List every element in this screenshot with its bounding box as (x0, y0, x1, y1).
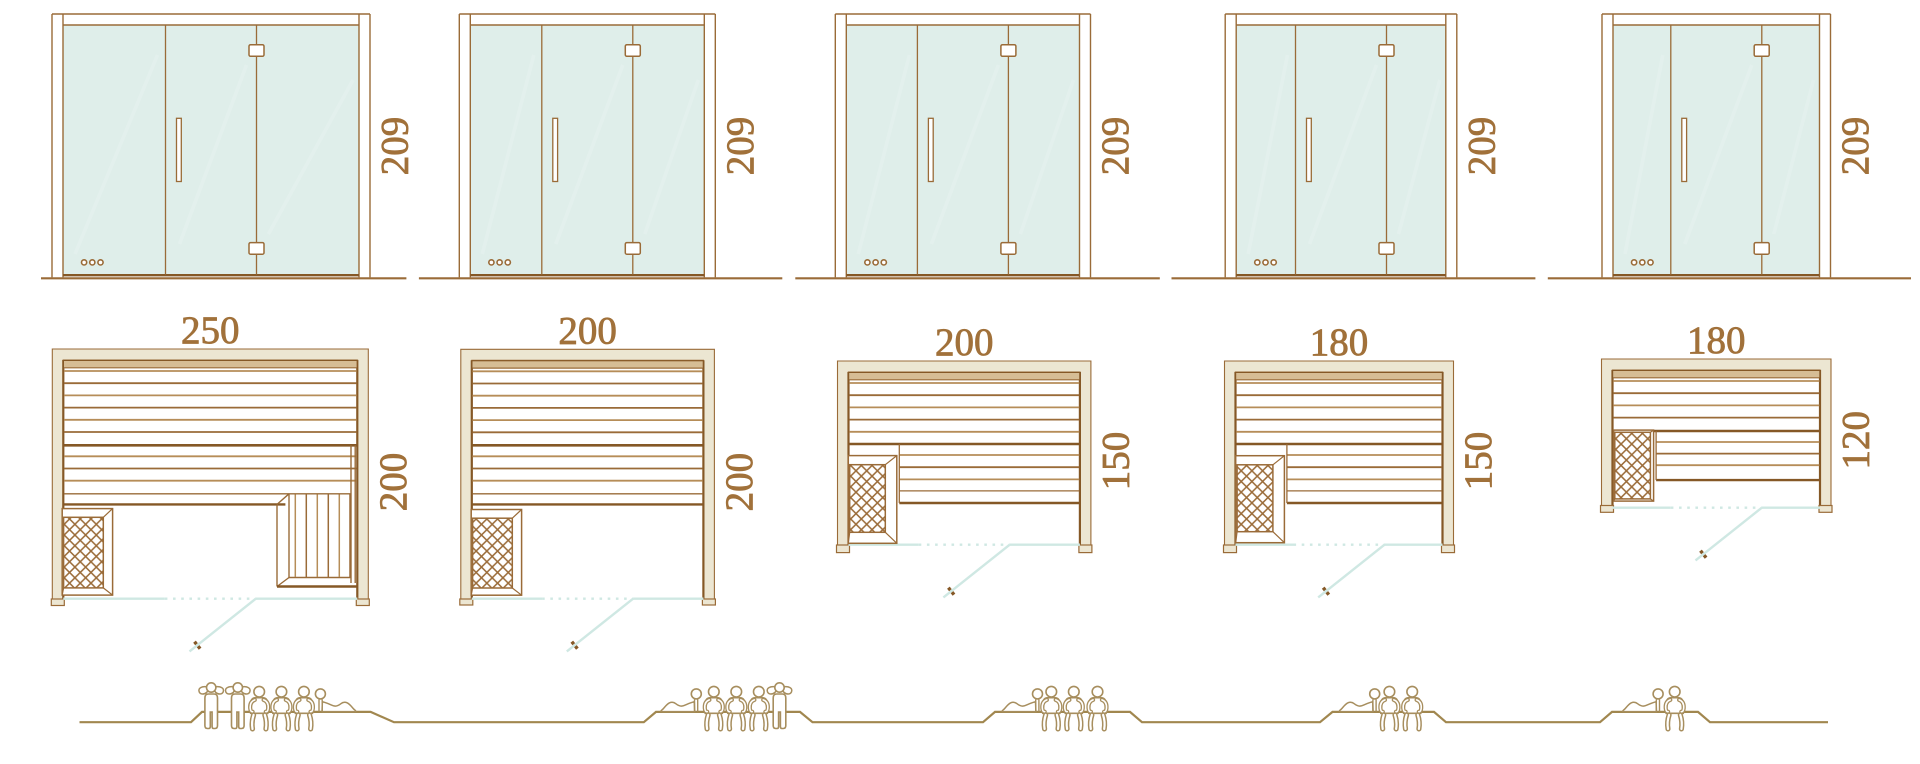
svg-text:200: 200 (935, 321, 994, 364)
svg-text:150: 150 (1457, 432, 1500, 491)
svg-text:180: 180 (1310, 321, 1369, 364)
svg-text:200: 200 (558, 309, 617, 352)
svg-text:209: 209 (1460, 117, 1503, 176)
svg-text:200: 200 (372, 453, 415, 512)
svg-text:209: 209 (374, 117, 417, 176)
svg-text:209: 209 (719, 117, 762, 176)
svg-text:120: 120 (1835, 411, 1878, 470)
svg-text:209: 209 (1094, 117, 1137, 176)
svg-text:200: 200 (718, 453, 761, 512)
svg-text:250: 250 (181, 309, 240, 352)
svg-text:150: 150 (1094, 432, 1137, 491)
svg-text:180: 180 (1687, 319, 1746, 362)
svg-text:209: 209 (1834, 117, 1877, 176)
